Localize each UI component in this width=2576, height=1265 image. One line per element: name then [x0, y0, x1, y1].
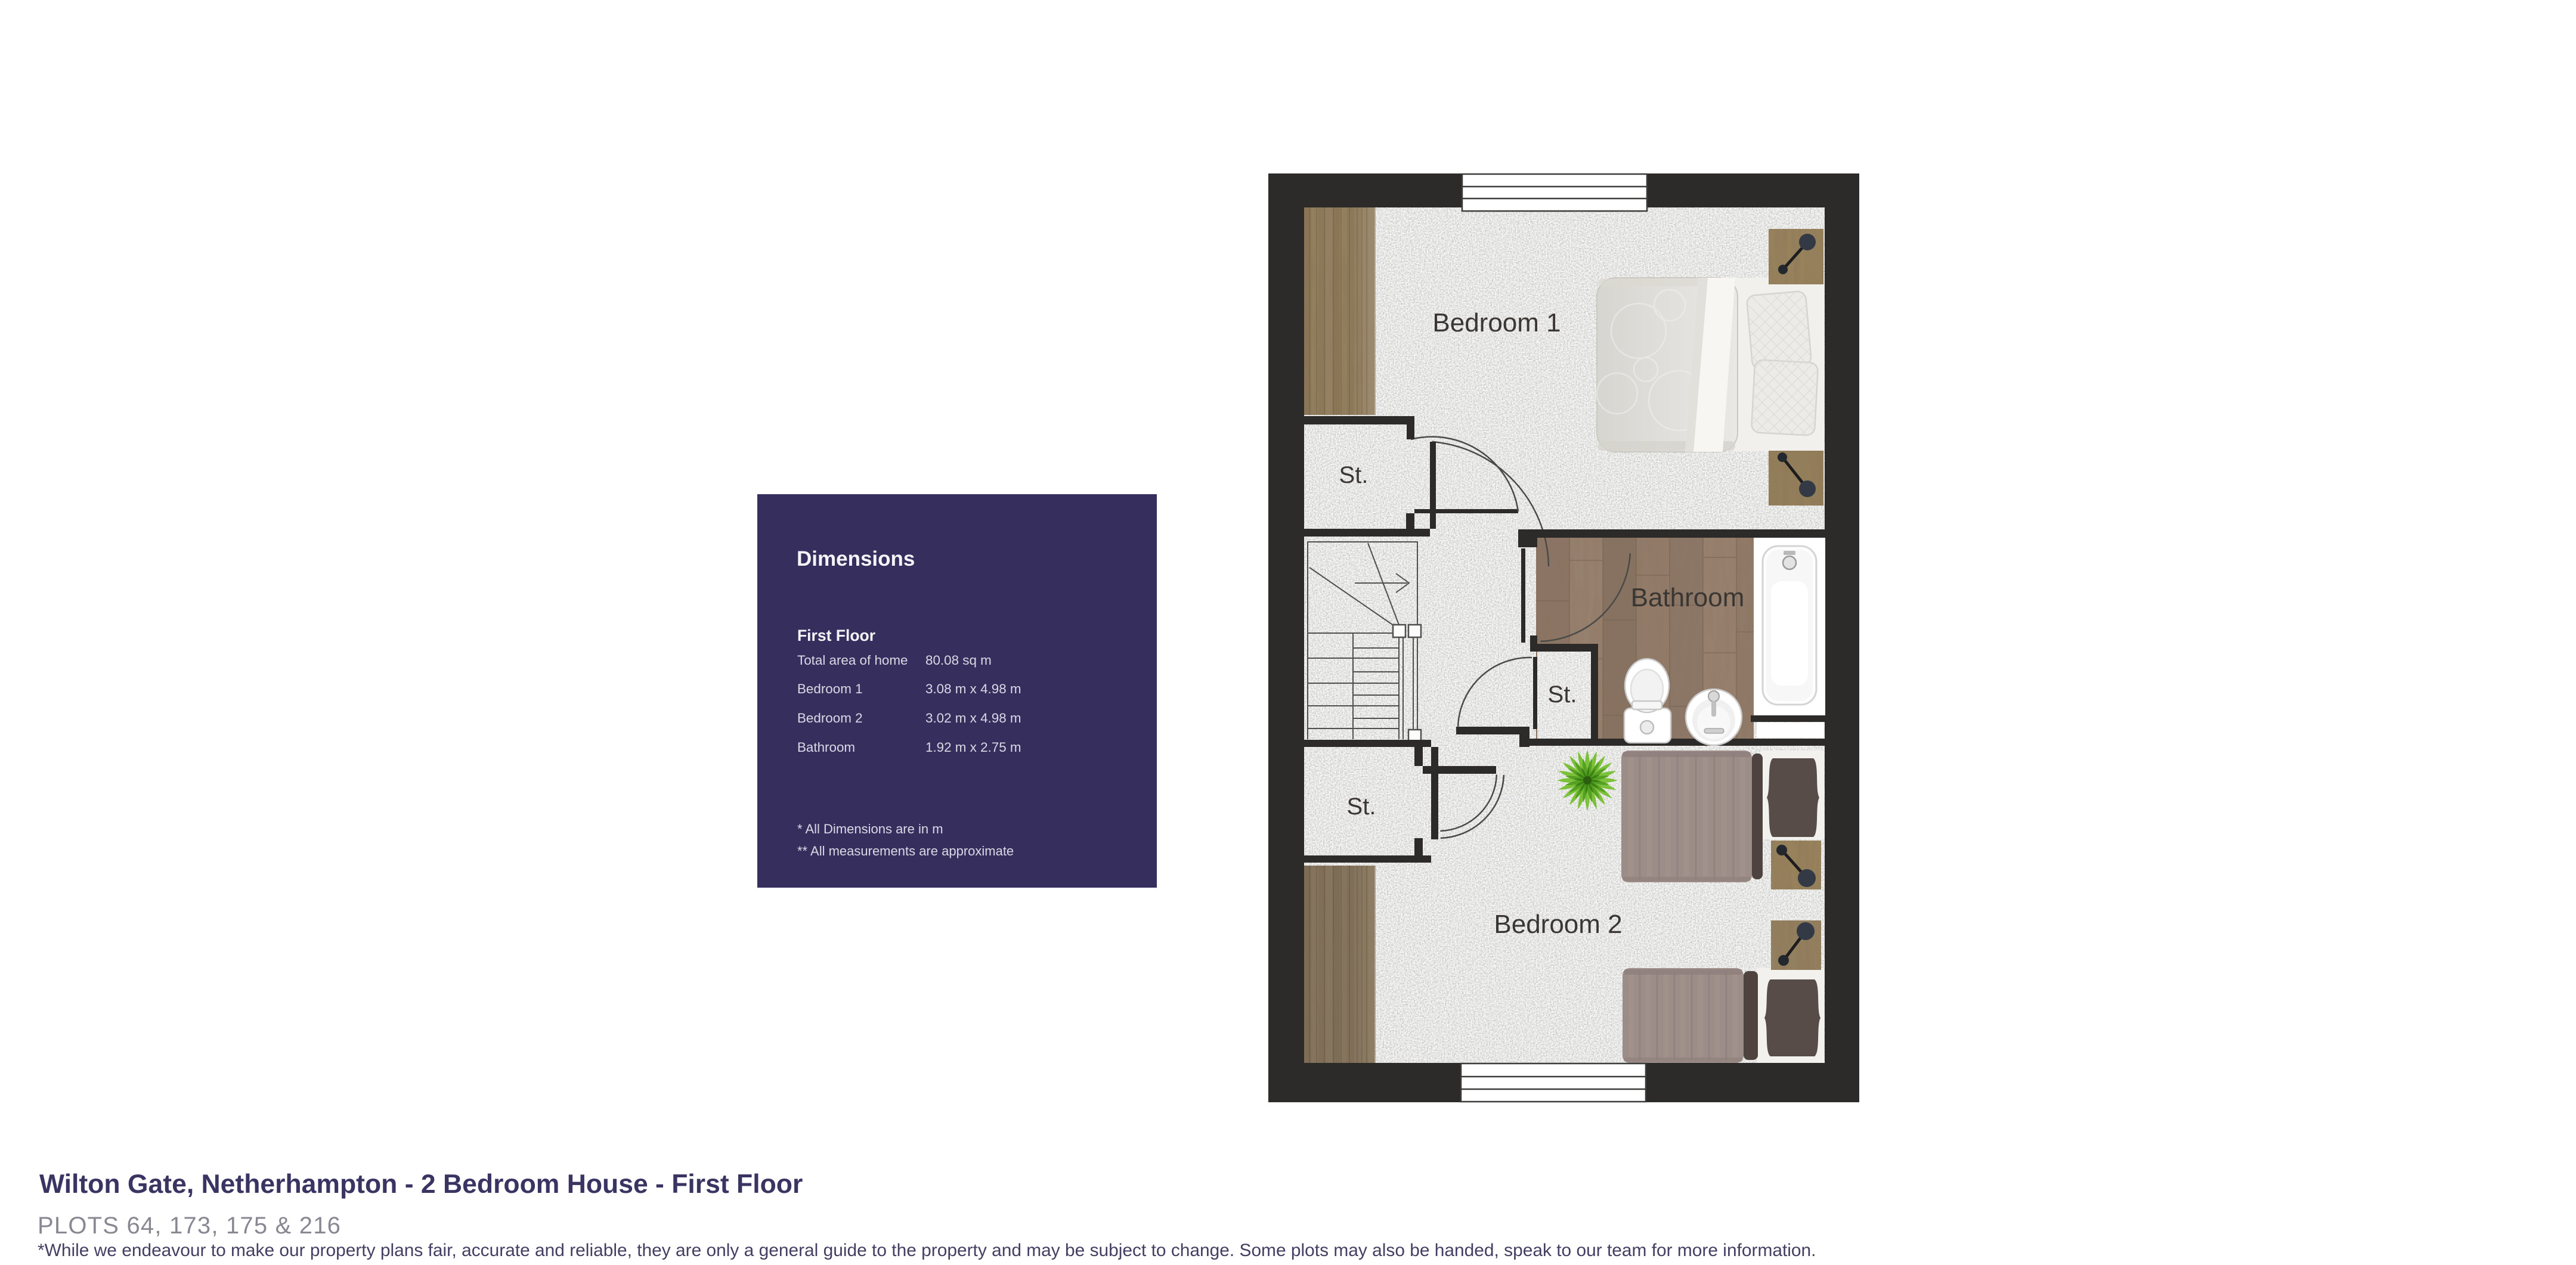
svg-text:PLOTS 64, 173, 175 & 216: PLOTS 64, 173, 175 & 216	[38, 1213, 341, 1239]
svg-text:Bedroom 2: Bedroom 2	[1494, 910, 1622, 939]
svg-text:St.: St.	[1339, 462, 1368, 488]
svg-text:3.08 m x 4.98 m: 3.08 m x 4.98 m	[925, 681, 1021, 696]
svg-text:Wilton Gate, Netherhampton - 2: Wilton Gate, Netherhampton - 2 Bedroom H…	[39, 1170, 803, 1199]
svg-text:Bedroom 2: Bedroom 2	[797, 711, 863, 725]
svg-text:St.: St.	[1548, 681, 1577, 708]
svg-text:1.92 m x 2.75 m: 1.92 m x 2.75 m	[925, 740, 1021, 755]
svg-text:St.: St.	[1347, 793, 1376, 820]
svg-text:Bedroom 1: Bedroom 1	[797, 681, 863, 696]
svg-text:Dimensions: Dimensions	[797, 547, 915, 571]
svg-text:** All measurements are approx: ** All measurements are approximate	[797, 844, 1014, 858]
svg-text:80.08 sq m: 80.08 sq m	[925, 653, 992, 668]
svg-text:First Floor: First Floor	[797, 627, 875, 644]
svg-text:3.02 m x 4.98 m: 3.02 m x 4.98 m	[925, 711, 1021, 725]
svg-text:Bathroom: Bathroom	[1631, 583, 1745, 612]
svg-text:*While we endeavour to make ou: *While we endeavour to make our property…	[38, 1241, 1816, 1260]
svg-text:Bedroom 1: Bedroom 1	[1432, 308, 1561, 337]
svg-text:* All Dimensions are in m: * All Dimensions are in m	[797, 821, 943, 836]
svg-text:Bathroom: Bathroom	[797, 740, 855, 755]
svg-text:Total area of home: Total area of home	[797, 653, 908, 668]
